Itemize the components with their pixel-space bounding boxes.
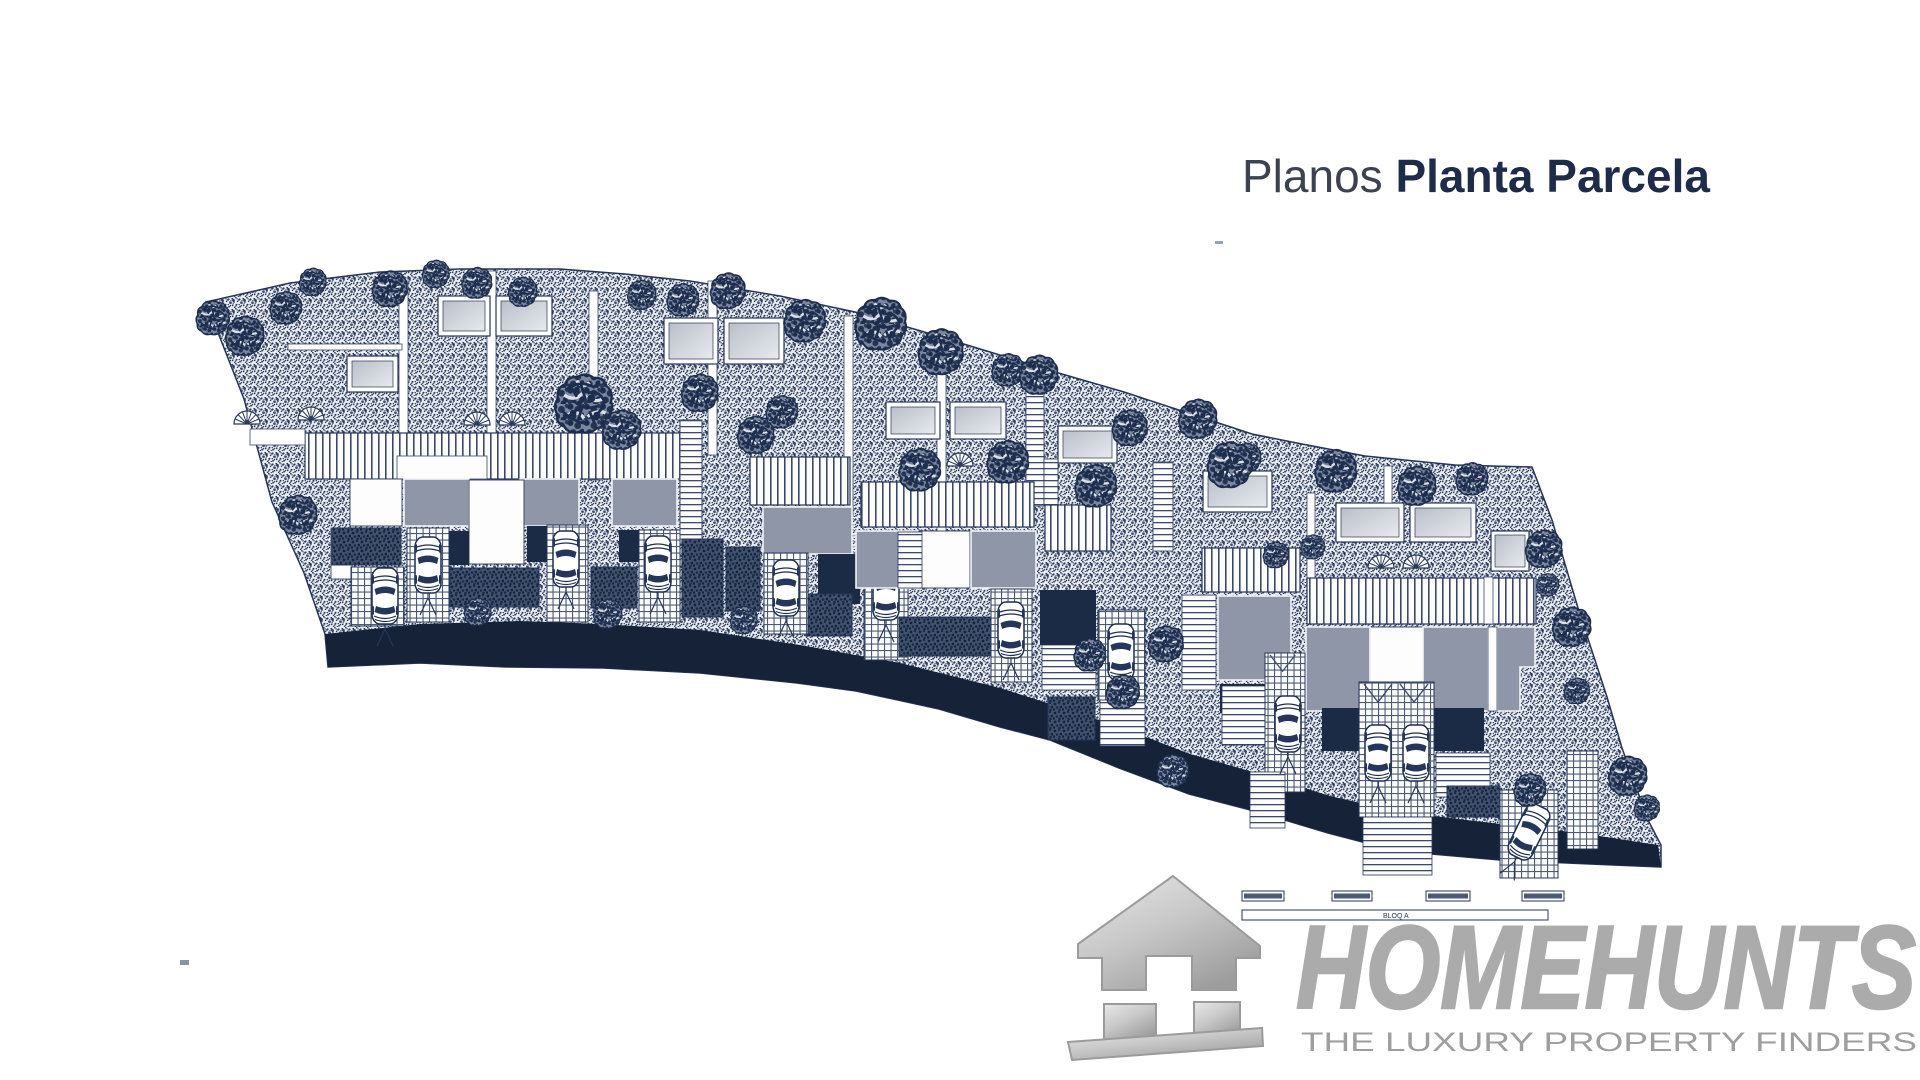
svg-text:Planos Planta Parcela: Planos Planta Parcela — [1242, 150, 1710, 202]
svg-text:HOMEHUNTS: HOMEHUNTS — [1296, 902, 1916, 1034]
svg-text:THE LUXURY PROPERTY FINDERS: THE LUXURY PROPERTY FINDERS — [1301, 1027, 1917, 1057]
svg-text:BLOQ A: BLOQ A — [1383, 913, 1409, 920]
